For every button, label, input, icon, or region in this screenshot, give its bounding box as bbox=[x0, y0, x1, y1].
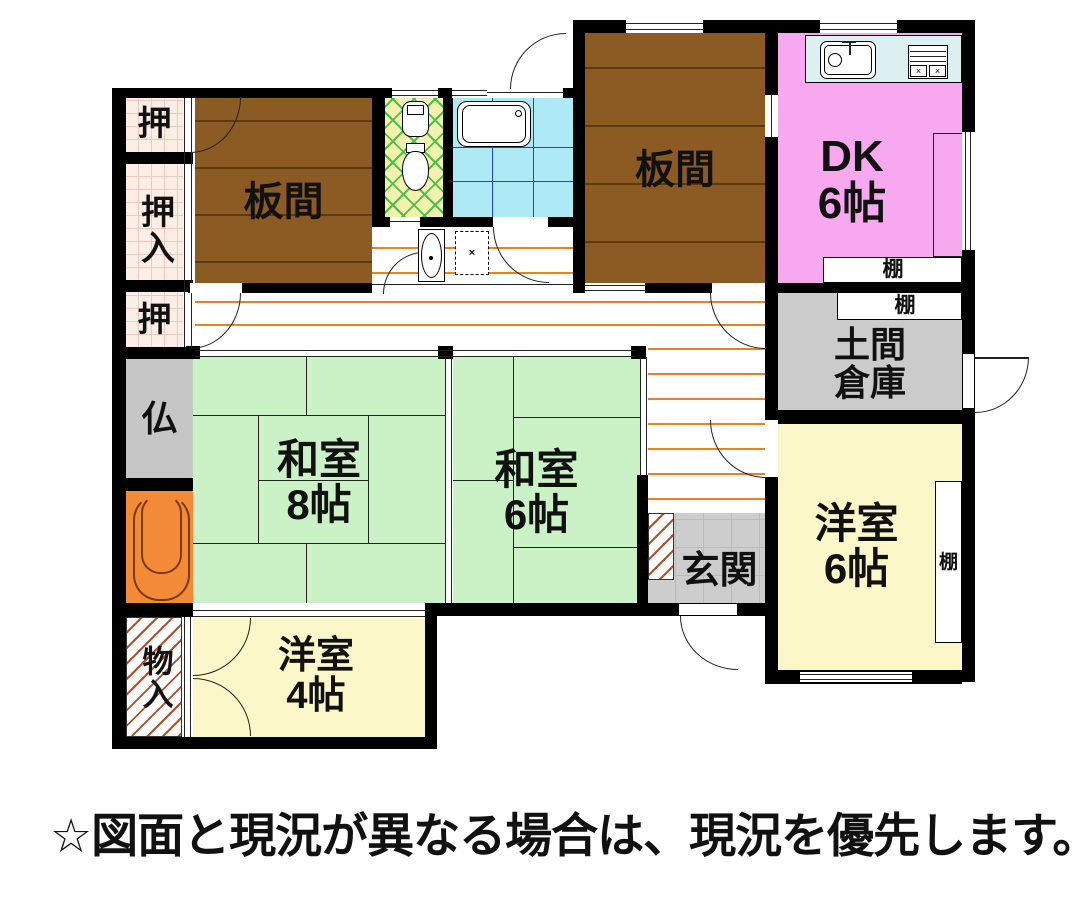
label-oshiire: 押入 bbox=[126, 182, 183, 278]
tatami-seam bbox=[306, 543, 307, 603]
bathtub-drain bbox=[515, 110, 522, 117]
toilet-bowl-icon bbox=[402, 151, 429, 191]
kitchen-sink-hole bbox=[828, 53, 842, 67]
closet-door-track bbox=[184, 98, 185, 347]
label-shelf-dk: 棚 bbox=[870, 258, 916, 282]
bath-grid-line bbox=[453, 147, 575, 148]
window-line bbox=[452, 95, 487, 96]
tatami-seam bbox=[513, 547, 640, 548]
disclaimer-note: ☆図面と現況が異なる場合は、現況を優先します。 bbox=[50, 797, 1080, 866]
window-line bbox=[626, 29, 703, 30]
fusuma-track bbox=[646, 357, 647, 475]
corridor-line bbox=[648, 398, 765, 400]
label-closet-mid: 押 bbox=[126, 300, 183, 340]
fusuma-track bbox=[193, 616, 425, 617]
label-shelf-doma: 棚 bbox=[884, 294, 926, 319]
wall-left-outer bbox=[112, 88, 126, 749]
fusuma-track bbox=[193, 610, 425, 611]
label-washitsu8: 和室8帖 bbox=[193, 438, 445, 528]
door-arc-doma-ext bbox=[975, 357, 1029, 413]
stove-grill-line bbox=[910, 56, 946, 57]
door-arc-bath bbox=[493, 227, 549, 283]
wall-genkan-bottom-r bbox=[738, 603, 765, 616]
stove-burner: × bbox=[929, 65, 946, 77]
door-arc-junction bbox=[710, 293, 766, 349]
door-opening bbox=[190, 283, 242, 293]
door-arc-backdoor bbox=[510, 33, 566, 89]
window-line bbox=[392, 90, 438, 91]
bath-door-opening bbox=[493, 217, 548, 227]
washbasin-dot bbox=[429, 256, 433, 260]
tatami-seam bbox=[193, 415, 445, 416]
floor-board-line bbox=[585, 125, 765, 127]
window-line bbox=[820, 23, 897, 24]
dk-door-line bbox=[771, 95, 772, 137]
window-line bbox=[965, 132, 966, 250]
door-arc-yoshitsu6 bbox=[710, 420, 766, 478]
wall-doma-bottom bbox=[778, 410, 962, 424]
corridor-line bbox=[648, 348, 765, 350]
fusuma-track bbox=[640, 357, 641, 475]
corridor-line bbox=[648, 373, 765, 375]
wall-corridor-right bbox=[765, 290, 778, 682]
floor-plan: × × × 押 押入 押 仏 物入 板間 板間 DK6帖 和室8帖 和室6帖 洋… bbox=[0, 0, 1092, 898]
wall-toilet-bath-div bbox=[443, 97, 453, 217]
door-arc-genkan bbox=[680, 616, 738, 670]
stove-burner: × bbox=[910, 65, 927, 77]
label-doma: 土間倉庫 bbox=[778, 322, 962, 406]
wall-bottom-left bbox=[112, 737, 437, 749]
genkan-step bbox=[648, 513, 674, 580]
window-dk-right bbox=[962, 132, 975, 250]
label-itanoma2: 板間 bbox=[585, 148, 765, 192]
label-monoire: 物入 bbox=[126, 635, 182, 721]
floor-board-line bbox=[585, 241, 765, 243]
label-yoshitsu6: 洋室6帖 bbox=[778, 505, 935, 589]
toilet-door-line bbox=[390, 221, 420, 222]
tatami-seam bbox=[193, 543, 445, 544]
wall-top-closet bbox=[112, 88, 188, 98]
junction-door-opening bbox=[712, 283, 765, 293]
tokonoma-contour-inner bbox=[141, 494, 182, 574]
bath-grid-line bbox=[533, 98, 534, 217]
window-line bbox=[800, 679, 912, 680]
washing-machine-pan-icon: × bbox=[455, 231, 489, 275]
wall-itanoma2-left bbox=[573, 20, 585, 283]
label-shelf-yoshitsu6: 棚 bbox=[935, 550, 962, 576]
window-line bbox=[392, 95, 438, 96]
window-line bbox=[452, 90, 487, 91]
corridor-line bbox=[195, 324, 765, 326]
label-washitsu6: 和室6帖 bbox=[443, 448, 630, 538]
label-dk: DK6帖 bbox=[760, 133, 944, 229]
label-butsudan: 仏 bbox=[126, 399, 193, 439]
window bbox=[626, 20, 703, 33]
kitchen-faucet-icon bbox=[849, 41, 851, 55]
fusuma-track bbox=[195, 356, 635, 357]
yoshitsu6-door-opening bbox=[765, 420, 778, 477]
door-arc-itanoma1-bottom bbox=[190, 293, 241, 349]
slide-line bbox=[585, 285, 645, 286]
corridor-line bbox=[195, 301, 765, 303]
label-itanoma1: 板間 bbox=[195, 180, 372, 224]
label-closet-top: 押 bbox=[126, 104, 183, 144]
corridor-line bbox=[648, 498, 765, 500]
genkan-door-leaf bbox=[678, 603, 738, 616]
window-line bbox=[626, 23, 703, 24]
floor-board-line bbox=[195, 261, 372, 263]
wall-butsudan-top bbox=[112, 347, 193, 359]
kitchen-faucet-icon bbox=[842, 41, 856, 43]
closet-door-track bbox=[190, 617, 191, 737]
floor-board-line bbox=[195, 167, 372, 169]
toilet-tank-inner bbox=[407, 105, 424, 115]
bath-grid-line bbox=[453, 181, 575, 182]
toilet-door-opening bbox=[390, 217, 420, 227]
window bbox=[820, 20, 897, 33]
wall-closet-div2 bbox=[112, 280, 193, 292]
wall-toilet-left bbox=[372, 88, 385, 227]
post bbox=[631, 346, 646, 359]
closet-door-track bbox=[184, 617, 185, 737]
wall-closet-div1 bbox=[112, 152, 193, 164]
backdoor-opening bbox=[487, 88, 563, 98]
label-genkan: 玄関 bbox=[674, 550, 765, 592]
tatami-seam bbox=[513, 417, 640, 418]
stove-grill-line bbox=[910, 61, 946, 62]
tatami-seam bbox=[306, 357, 307, 415]
wall-genkan-bottom-l bbox=[637, 603, 678, 616]
label-yoshitsu4: 洋室4帖 bbox=[200, 632, 432, 720]
wall-right-lower bbox=[962, 292, 975, 682]
slide-line bbox=[585, 290, 645, 291]
stove-grill-line bbox=[910, 51, 946, 52]
window-line bbox=[970, 132, 971, 250]
wall-butsudan-bottom bbox=[112, 478, 193, 491]
floor-board-line bbox=[585, 67, 765, 69]
fusuma-track bbox=[195, 350, 635, 351]
wall-washitsu-bottom bbox=[425, 603, 648, 616]
backdoor-line bbox=[487, 92, 563, 93]
doma-door-leaf bbox=[962, 353, 975, 409]
wall-tokonoma-bottom bbox=[112, 603, 193, 617]
wall-genkan-left bbox=[637, 475, 648, 616]
window-line bbox=[820, 29, 897, 30]
window-line bbox=[800, 674, 912, 675]
